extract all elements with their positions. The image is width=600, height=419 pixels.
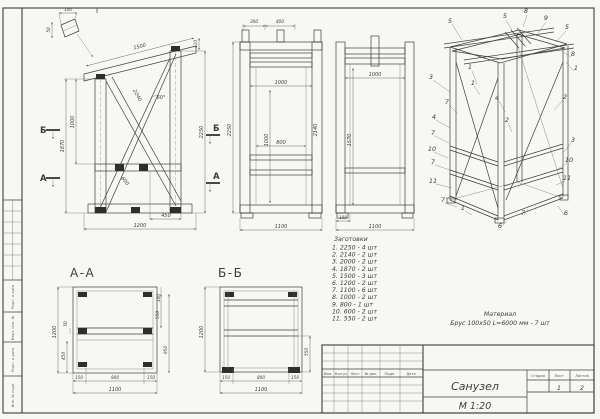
front-elevation: 300 400 1000 800 2250 1000 2140 1100 bbox=[227, 19, 322, 231]
parts-list-item: 5. 1500 - 3 шт bbox=[332, 273, 377, 280]
titleblock-header-stage: Стадия bbox=[531, 374, 545, 378]
part-callout: 10 bbox=[428, 145, 436, 153]
dim-label: 550 bbox=[155, 311, 160, 319]
beam-detail: 100 50 bbox=[46, 7, 93, 57]
part-callout: 11 bbox=[563, 174, 571, 182]
dim-label: 400 bbox=[276, 19, 284, 24]
part-callout: 2 bbox=[563, 93, 567, 101]
dim-label: 1200 bbox=[52, 326, 58, 339]
titleblock-header-sheets: Листов bbox=[575, 374, 588, 378]
part-callout: 4 bbox=[495, 94, 499, 102]
mid-rail bbox=[95, 164, 181, 171]
parts-list-item: 8. 1000 - 2 шт bbox=[332, 294, 377, 301]
section-title: А-А bbox=[70, 266, 95, 280]
parts-list-title: Заготовки bbox=[334, 236, 368, 243]
part-callout: 4 bbox=[432, 113, 436, 121]
dim-label: 450 bbox=[161, 213, 171, 219]
dim-label: 1000 bbox=[70, 116, 76, 129]
dim-label: 60° bbox=[157, 95, 166, 101]
front-view: 100 50 1500 110 2250 1000 1870 2240 60° … bbox=[40, 7, 220, 231]
dim-label: 1000 bbox=[369, 72, 382, 78]
dim-label: 800 bbox=[257, 375, 265, 380]
part-callout: 11 bbox=[429, 177, 437, 185]
section-marker-a-left: А bbox=[40, 174, 60, 187]
part-callout: 7 bbox=[431, 129, 436, 137]
section-bb: Б-Б 1200 550 150 800 150 1100 bbox=[199, 266, 311, 394]
dim-label: 1500 bbox=[133, 43, 147, 52]
part-callout: 8 bbox=[524, 7, 528, 15]
part-callout: 7 bbox=[431, 158, 436, 166]
dim-label: 1570 bbox=[347, 134, 353, 147]
part-callout: 3 bbox=[429, 73, 433, 81]
dim-label: 100 bbox=[156, 294, 161, 302]
titleblock-header-sheet: Лист bbox=[554, 374, 563, 378]
parts-list-item: 1. 2250 - 4 шт bbox=[332, 245, 377, 252]
titleblock-header-podp: Подп. bbox=[385, 372, 396, 376]
frame-strip-label: Подп. и дата bbox=[11, 348, 15, 372]
part-callout: 5 bbox=[565, 23, 569, 31]
parts-list-item: 7. 1100 - 6 шт bbox=[332, 287, 377, 294]
part-callout: 7 bbox=[445, 98, 450, 106]
drawing-scale: М 1:20 bbox=[459, 401, 492, 412]
blueprint-canvas: Подп. и дата Взам. инв. № Подп. и дата И… bbox=[0, 0, 600, 419]
left-post bbox=[240, 42, 250, 213]
dim-label: 150 bbox=[291, 375, 299, 380]
title-block: Изм. Кол.уч Лист № док. Подп. Дата Сануз… bbox=[322, 345, 594, 413]
parts-list-item: 6. 1200 - 2 шт bbox=[332, 280, 377, 287]
bottom-beam bbox=[240, 205, 322, 213]
dim-label: 550 bbox=[304, 348, 309, 356]
parts-list-item: 11. 550 - 2 шт bbox=[332, 316, 377, 323]
section-marker-a-right: А bbox=[206, 172, 220, 192]
sheet-frame: Подп. и дата Взам. инв. № Подп. и дата И… bbox=[3, 8, 594, 413]
titleblock-header-izm: Изм. bbox=[324, 372, 332, 376]
dim-label: 1100 bbox=[275, 224, 288, 230]
part-callout: 1 bbox=[468, 63, 472, 71]
bottom-beam bbox=[336, 205, 414, 213]
right-post bbox=[405, 42, 414, 213]
top-beam bbox=[240, 42, 322, 50]
frame-strip-label: Подп. и дата bbox=[11, 285, 15, 309]
part-callout: 8 bbox=[571, 50, 575, 58]
dim-label: 950 bbox=[163, 346, 168, 354]
dim-label: 1200 bbox=[134, 223, 147, 229]
dim-label: 800 bbox=[111, 375, 119, 380]
part-callout: 1 bbox=[574, 64, 578, 72]
parts-list-item: 2. 2140 - 2 шт bbox=[332, 252, 377, 259]
parts-list-item: 4. 1870 - 2 шт bbox=[332, 266, 377, 273]
dim-label: 1100 bbox=[109, 387, 122, 393]
dim-label: 1000 bbox=[275, 80, 288, 86]
part-callout: 5 bbox=[503, 12, 507, 20]
x-brace bbox=[100, 54, 181, 212]
section-letter: Б bbox=[213, 124, 219, 134]
material-label: Материал bbox=[484, 311, 516, 318]
titleblock-header-doc: № док. bbox=[365, 372, 378, 376]
titleblock-header-koluch: Кол.уч bbox=[335, 372, 347, 376]
part-callout: 7 bbox=[441, 196, 446, 204]
parts-list-item: 9. 800 - 1 шт bbox=[332, 301, 373, 308]
dim-label: 2250 bbox=[227, 124, 233, 137]
section-letter: А bbox=[213, 172, 220, 182]
dim-label: 50 bbox=[63, 321, 68, 327]
parts-list-item: 3. 2000 - 2 шт bbox=[332, 259, 377, 266]
titleblock-header-data: Дата bbox=[406, 372, 415, 376]
dim-label: 1100 bbox=[369, 224, 382, 230]
section-marker-b-left: Б bbox=[40, 126, 60, 139]
dim-label: 50 bbox=[46, 27, 51, 33]
sheet-number: 1 bbox=[557, 384, 561, 392]
dim-label: 450 bbox=[61, 352, 66, 360]
dim-label: 150 bbox=[222, 375, 230, 380]
side-elevation: 1000 1570 100 1100 bbox=[336, 36, 414, 231]
material-spec: Брус 100х50 L=6000 мм - 7 шт bbox=[450, 320, 550, 327]
parts-list-item: 10. 600 - 2 шт bbox=[332, 308, 377, 315]
dim-label: 1870 bbox=[60, 140, 66, 153]
parts-list: Заготовки 1. 2250 - 4 шт 2. 2140 - 2 шт … bbox=[332, 236, 377, 323]
drawing-sheet: Подп. и дата Взам. инв. № Подп. и дата И… bbox=[0, 0, 600, 419]
dim-label: 2140 bbox=[313, 124, 319, 137]
isometric-view: 5 5 8 9 5 8 1 3 1 1 7 4 4 2 2 3 7 10 7 1… bbox=[428, 7, 578, 230]
titleblock-header-list: Лист bbox=[350, 372, 359, 376]
section-marker-b-right: Б bbox=[206, 124, 220, 144]
dim-label: 300 bbox=[250, 19, 258, 24]
part-callout: 9 bbox=[544, 14, 548, 22]
part-callout: 1 bbox=[471, 79, 475, 87]
dim-label: 2240 bbox=[131, 88, 142, 102]
dim-label: 2250 bbox=[199, 126, 205, 139]
section-letter: Б bbox=[40, 126, 46, 136]
dim-label: 100 bbox=[339, 215, 347, 220]
part-callout: 1 bbox=[461, 204, 465, 212]
dim-label: 110 bbox=[193, 40, 198, 48]
left-post bbox=[336, 42, 345, 213]
part-callout: 6 bbox=[498, 222, 502, 230]
material-note: Материал Брус 100х50 L=6000 мм - 7 шт bbox=[450, 311, 550, 327]
dim-label: 800 bbox=[276, 140, 286, 146]
dim-label: 150 bbox=[147, 375, 155, 380]
dim-label: 600 bbox=[119, 176, 130, 187]
dim-label: 1200 bbox=[199, 326, 205, 339]
drawing-title: Санузел bbox=[451, 380, 499, 393]
part-callout: 10 bbox=[565, 156, 573, 164]
dim-label: 150 bbox=[75, 375, 83, 380]
frame-strip-label: Инв. № подл. bbox=[11, 383, 15, 408]
dim-label: 1100 bbox=[255, 387, 268, 393]
dim-label: 1000 bbox=[264, 134, 270, 147]
part-callout: 5 bbox=[448, 17, 452, 25]
section-letter: А bbox=[40, 174, 47, 184]
part-callout: 2 bbox=[505, 116, 509, 124]
part-callout: 6 bbox=[564, 209, 568, 217]
sheets-total: 2 bbox=[580, 384, 584, 392]
section-title: Б-Б bbox=[218, 266, 243, 280]
frame-strip-label: Взам. инв. № bbox=[11, 316, 15, 341]
section-aa: А-А 1200 50 450 100 550 950 150 800 150 bbox=[52, 266, 169, 394]
part-callout: 3 bbox=[571, 136, 575, 144]
dim-label: 100 bbox=[64, 7, 72, 12]
